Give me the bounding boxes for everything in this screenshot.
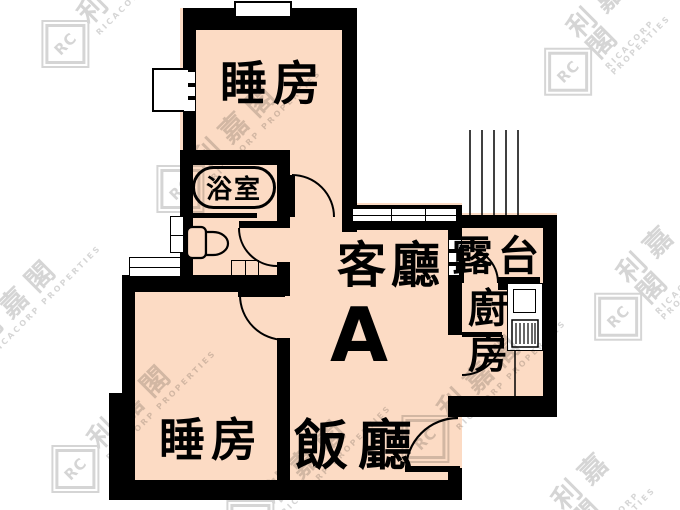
bathroom-label: 浴室 <box>206 169 262 206</box>
balcony-railing <box>470 130 518 216</box>
bathtub: 浴室 <box>192 166 276 209</box>
wall-bathroom-north <box>180 150 290 165</box>
wall-south <box>109 480 462 500</box>
watermark: RC 利嘉閣RICACORP PROPERTIES <box>0 221 103 392</box>
wall-bathroom-east-upper <box>277 165 290 228</box>
wall-bedroom-dining-divider <box>277 338 290 484</box>
bathroom-cabinet <box>231 260 259 277</box>
wall-bedroom-left-west <box>122 275 135 500</box>
window-living-north <box>352 208 457 222</box>
window-bedroom-top-north <box>234 1 292 18</box>
wall-bedroom-left-north <box>122 275 290 292</box>
ricacorp-logo-icon: RC <box>548 51 588 91</box>
ricacorp-logo-icon: RC <box>230 504 270 510</box>
window-bathroom-west <box>170 216 184 253</box>
door-leaf-bedroom-top <box>290 175 295 217</box>
bedroom-top-label: 睡房 <box>220 61 326 108</box>
wall-bedroom-top-east <box>342 8 357 232</box>
wall-kitchen-west <box>448 290 462 335</box>
dining-room-label: 飯廳 <box>294 419 422 473</box>
ricacorp-logo-icon: RC <box>45 24 85 64</box>
watermark: RC 利嘉閣RICACORP PROPERTIES <box>512 418 678 510</box>
living-room-label: 客廳 <box>337 241 445 290</box>
floor-plan: 浴室 睡房 客廳 A 飯廳 睡房 露台 廚房 RC 利嘉閣RICA <box>0 0 680 510</box>
watermark: RC 利嘉閣RICACORP PROPERTIES <box>527 0 680 112</box>
wall-balcony-north <box>448 215 557 228</box>
wall-vent-1 <box>184 72 195 83</box>
wall-entrance-jamb <box>448 468 462 500</box>
door-leaf-bathroom <box>239 221 277 228</box>
wall-east <box>543 215 557 417</box>
window-bedroom-left-north <box>129 257 181 277</box>
ricacorp-logo-icon: RC <box>598 296 638 336</box>
wall-vent-2 <box>184 87 195 96</box>
wall-kitchen-south <box>448 396 557 417</box>
wall-bathtub-edge <box>188 213 257 218</box>
kitchen-sink <box>513 289 536 313</box>
unit-letter-label: A <box>330 298 388 373</box>
balcony-label: 露台 <box>452 236 544 277</box>
door-leaf-bedroom-left <box>238 292 285 297</box>
bedroom-left-label: 睡房 <box>159 417 263 463</box>
kitchen-label: 廚房 <box>464 287 504 379</box>
ricacorp-logo-icon: RC <box>55 449 95 489</box>
wall-vent-3 <box>184 100 195 111</box>
watermark: RC 利嘉閣RICACORP PROPERTIES <box>577 212 680 357</box>
